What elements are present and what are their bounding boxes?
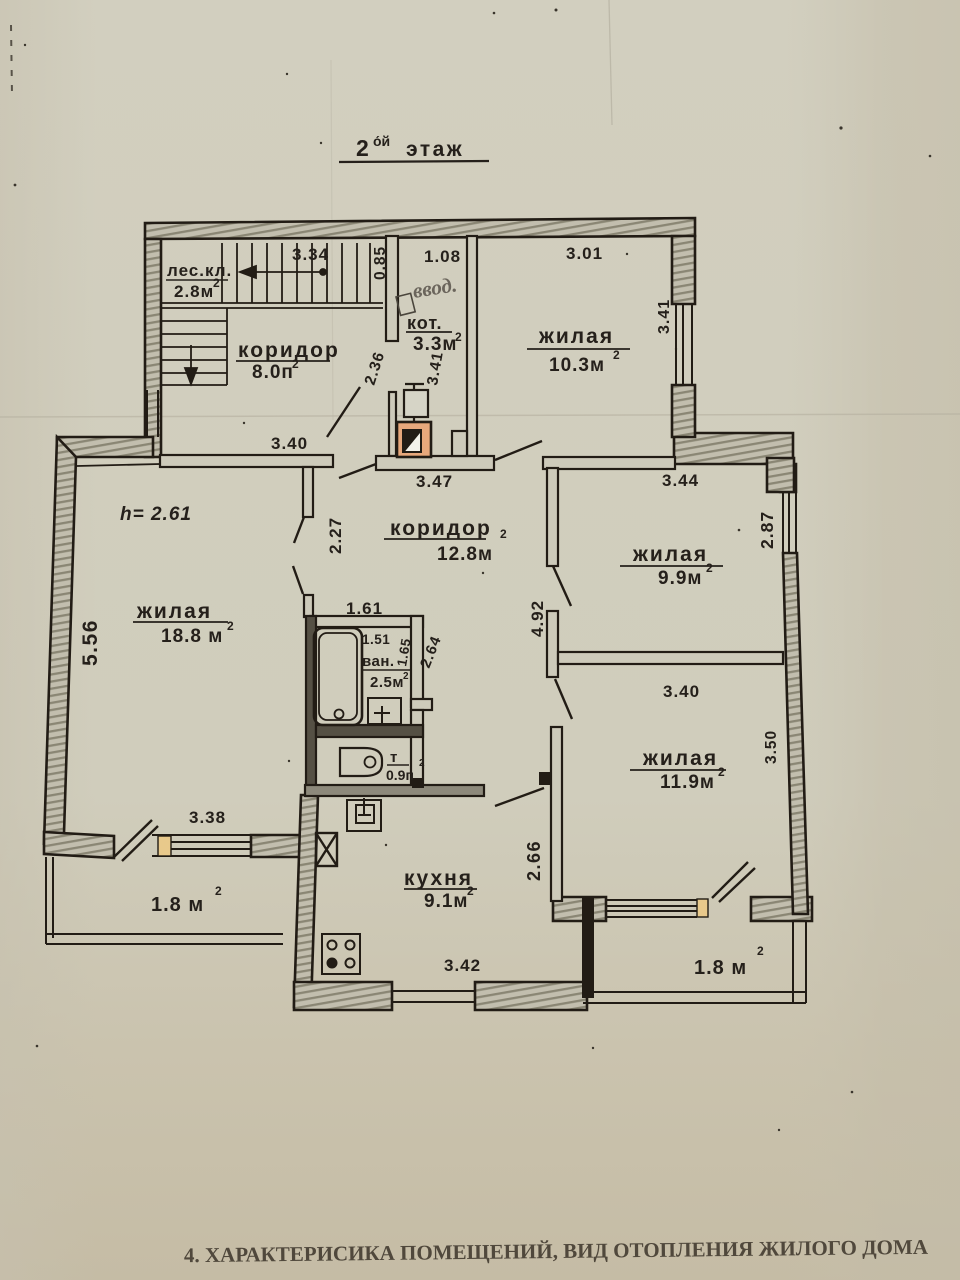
svg-text:кухня: кухня (404, 867, 473, 890)
svg-text:жилая: жилая (136, 600, 212, 623)
svg-text:1.8 м: 1.8 м (694, 957, 747, 979)
svg-text:2.87: 2.87 (757, 511, 777, 549)
svg-text:h= 2.61: h= 2.61 (120, 504, 192, 525)
svg-text:жилая: жилая (642, 747, 718, 770)
svg-text:4.92: 4.92 (528, 600, 547, 637)
svg-text:8.0п: 8.0п (252, 362, 294, 383)
svg-text:3.44: 3.44 (662, 471, 699, 490)
svg-text:1.51: 1.51 (362, 632, 390, 647)
svg-text:этаж: этаж (406, 138, 464, 161)
svg-text:коридор: коридор (390, 517, 492, 540)
svg-text:3.47: 3.47 (416, 472, 453, 491)
svg-text:кот.: кот. (407, 313, 443, 333)
svg-text:2.66: 2.66 (524, 840, 544, 881)
svg-text:0.85: 0.85 (372, 246, 389, 280)
svg-text:3.38: 3.38 (189, 808, 226, 827)
svg-text:2: 2 (356, 135, 370, 161)
svg-text:2.8м: 2.8м (174, 282, 214, 301)
svg-text:1.8 м: 1.8 м (151, 894, 204, 916)
svg-text:2: 2 (500, 527, 507, 541)
svg-text:2: 2 (757, 944, 764, 958)
svg-text:3.34: 3.34 (292, 245, 329, 264)
svg-text:ван.: ван. (362, 653, 395, 670)
svg-text:2: 2 (419, 758, 425, 769)
svg-text:1.08: 1.08 (424, 247, 461, 266)
svg-text:2: 2 (403, 671, 409, 682)
svg-text:1.61: 1.61 (346, 599, 383, 618)
svg-text:12.8м: 12.8м (437, 544, 493, 565)
svg-text:2.5м: 2.5м (370, 674, 404, 691)
svg-text:3.40: 3.40 (271, 434, 308, 453)
svg-text:2.27: 2.27 (326, 517, 345, 554)
svg-text:0.9п: 0.9п (386, 767, 414, 783)
svg-text:3.01: 3.01 (566, 244, 603, 263)
svg-text:11.9м: 11.9м (660, 772, 715, 793)
svg-text:2: 2 (455, 330, 462, 344)
svg-text:3.41: 3.41 (656, 299, 673, 334)
svg-text:9.1м: 9.1м (424, 891, 468, 912)
svg-text:2: 2 (718, 765, 725, 779)
svg-text:2: 2 (467, 884, 474, 898)
svg-text:т: т (390, 749, 397, 766)
svg-text:2: 2 (292, 357, 299, 371)
svg-text:2: 2 (706, 561, 713, 575)
svg-text:жилая: жилая (538, 325, 614, 348)
svg-text:коридор: коридор (238, 339, 340, 362)
svg-text:3.50: 3.50 (763, 730, 780, 764)
svg-text:18.8 м: 18.8 м (161, 626, 223, 647)
svg-text:жилая: жилая (632, 543, 708, 566)
svg-text:лес.кл.: лес.кл. (167, 261, 232, 280)
svg-text:5.56: 5.56 (79, 619, 102, 666)
svg-text:9.9м: 9.9м (658, 568, 702, 589)
svg-text:3.42: 3.42 (444, 956, 481, 975)
svg-text:2: 2 (213, 276, 220, 290)
svg-text:10.3м: 10.3м (549, 355, 605, 376)
svg-text:3.40: 3.40 (663, 682, 700, 701)
svg-text:2: 2 (215, 884, 222, 898)
svg-text:2: 2 (613, 348, 620, 362)
svg-text:о́й: о́й (373, 133, 390, 149)
svg-text:2: 2 (227, 619, 234, 633)
